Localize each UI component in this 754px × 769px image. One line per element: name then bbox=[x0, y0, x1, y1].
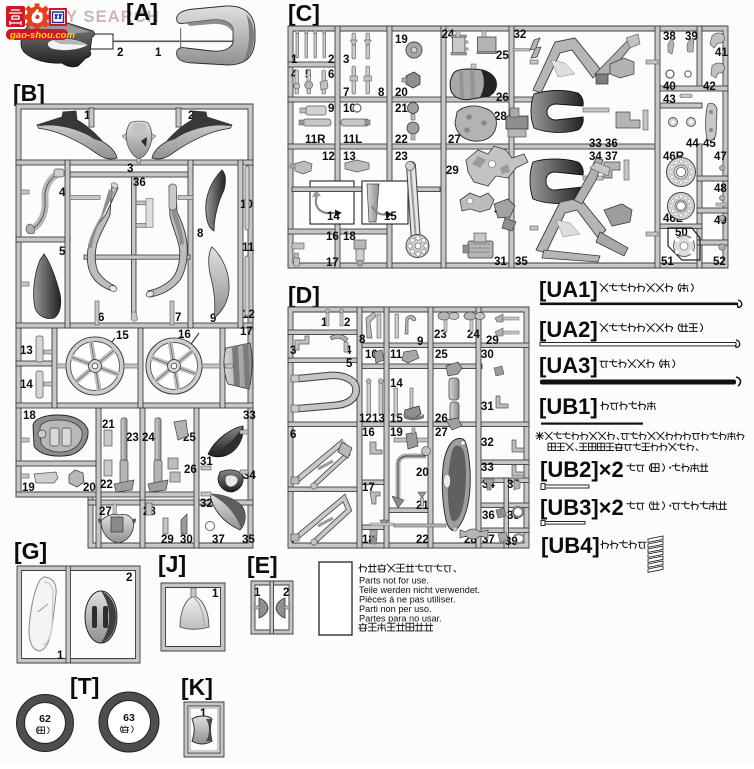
svg-text:30: 30 bbox=[180, 534, 193, 546]
svg-text:14: 14 bbox=[327, 211, 340, 223]
svg-text:[G]: [G] bbox=[14, 538, 47, 564]
svg-text:22: 22 bbox=[416, 534, 429, 546]
svg-text:9: 9 bbox=[328, 103, 334, 115]
svg-text:12: 12 bbox=[359, 413, 372, 425]
svg-text:[UB3]×2: [UB3]×2 bbox=[540, 495, 624, 520]
svg-text:15: 15 bbox=[384, 211, 397, 223]
svg-text:[K]: [K] bbox=[181, 674, 213, 700]
svg-text:19: 19 bbox=[22, 482, 35, 494]
svg-text:37: 37 bbox=[605, 151, 618, 163]
svg-text:32: 32 bbox=[514, 29, 527, 41]
svg-text:[J]: [J] bbox=[158, 551, 186, 577]
svg-text:[UA1]: [UA1] bbox=[539, 277, 598, 302]
svg-text:24: 24 bbox=[142, 432, 155, 444]
svg-text:22: 22 bbox=[395, 134, 408, 146]
svg-text:3: 3 bbox=[127, 163, 133, 175]
svg-text:21: 21 bbox=[395, 103, 408, 115]
svg-text:19: 19 bbox=[395, 34, 408, 46]
svg-text:29: 29 bbox=[486, 335, 499, 347]
svg-text:42: 42 bbox=[703, 81, 716, 93]
svg-text:9: 9 bbox=[417, 336, 423, 348]
svg-text:[B]: [B] bbox=[13, 80, 45, 106]
svg-text:33: 33 bbox=[589, 138, 602, 150]
svg-text:11L: 11L bbox=[343, 134, 362, 146]
svg-text:[UB2]×2: [UB2]×2 bbox=[540, 457, 624, 482]
svg-text:31: 31 bbox=[481, 401, 494, 413]
svg-text:25: 25 bbox=[496, 50, 509, 62]
svg-text:15: 15 bbox=[116, 330, 129, 342]
svg-text:1: 1 bbox=[212, 588, 219, 600]
svg-text:Teile werden nicht verwendet.: Teile werden nicht verwendet. bbox=[359, 585, 480, 595]
svg-text:[E]: [E] bbox=[247, 552, 278, 578]
svg-text:14: 14 bbox=[20, 379, 33, 391]
svg-text:7: 7 bbox=[175, 312, 181, 324]
svg-text:23: 23 bbox=[126, 432, 139, 444]
svg-text:3: 3 bbox=[343, 54, 349, 66]
svg-text:8: 8 bbox=[359, 334, 366, 346]
svg-text:2: 2 bbox=[328, 54, 334, 66]
svg-text:18: 18 bbox=[23, 410, 36, 422]
svg-text:4: 4 bbox=[59, 187, 66, 199]
svg-text:26: 26 bbox=[184, 464, 197, 476]
svg-text:20: 20 bbox=[395, 87, 408, 99]
svg-text:32: 32 bbox=[481, 437, 494, 449]
svg-text:[T]: [T] bbox=[70, 673, 99, 699]
svg-text:36: 36 bbox=[482, 510, 495, 522]
svg-text:33: 33 bbox=[243, 410, 256, 422]
svg-text:20: 20 bbox=[83, 482, 96, 494]
svg-text:31: 31 bbox=[494, 256, 507, 268]
svg-text:41: 41 bbox=[715, 47, 728, 59]
svg-text:22: 22 bbox=[100, 479, 113, 491]
svg-text:29: 29 bbox=[161, 534, 174, 546]
svg-text:Partes para no usar.: Partes para no usar. bbox=[359, 614, 442, 624]
svg-text:gao-shou.com: gao-shou.com bbox=[9, 30, 75, 41]
svg-text:5: 5 bbox=[59, 246, 66, 258]
svg-text:37: 37 bbox=[212, 534, 225, 546]
svg-text:17: 17 bbox=[326, 257, 339, 269]
svg-text:[UA3]: [UA3] bbox=[539, 353, 598, 378]
svg-text:Pièces á ne pas utiliser.: Pièces á ne pas utiliser. bbox=[359, 595, 456, 605]
svg-text:[UB1]: [UB1] bbox=[539, 394, 598, 419]
svg-text:[UB4]: [UB4] bbox=[541, 533, 600, 558]
svg-text:1: 1 bbox=[254, 587, 261, 599]
svg-text:48: 48 bbox=[714, 183, 727, 195]
svg-text:5: 5 bbox=[346, 358, 353, 370]
svg-text:29: 29 bbox=[446, 165, 459, 177]
svg-text:36: 36 bbox=[605, 138, 618, 150]
svg-text:35: 35 bbox=[242, 534, 255, 546]
svg-text:Parts not for use.: Parts not for use. bbox=[359, 576, 429, 586]
svg-text:2: 2 bbox=[126, 572, 132, 584]
svg-text:43: 43 bbox=[663, 94, 676, 106]
svg-text:40: 40 bbox=[663, 81, 676, 93]
svg-text:Parti non per uso.: Parti non per uso. bbox=[359, 604, 432, 614]
svg-text:21: 21 bbox=[102, 419, 115, 431]
svg-text:36: 36 bbox=[133, 177, 146, 189]
svg-text:20: 20 bbox=[416, 467, 429, 479]
svg-text:[UA2]: [UA2] bbox=[539, 317, 598, 342]
svg-text:1: 1 bbox=[57, 650, 64, 662]
svg-text:16: 16 bbox=[326, 231, 339, 243]
svg-text:2: 2 bbox=[283, 587, 289, 599]
svg-text:1: 1 bbox=[155, 47, 162, 59]
svg-text:8: 8 bbox=[378, 87, 385, 99]
svg-text:35: 35 bbox=[515, 256, 528, 268]
svg-text:7: 7 bbox=[343, 87, 349, 99]
svg-text:11R: 11R bbox=[305, 134, 326, 146]
svg-text:63: 63 bbox=[123, 712, 135, 724]
svg-text:2: 2 bbox=[117, 47, 123, 59]
svg-text:6: 6 bbox=[290, 429, 296, 441]
svg-text:11: 11 bbox=[390, 349, 403, 361]
svg-text:6: 6 bbox=[328, 69, 334, 81]
svg-text:[C]: [C] bbox=[288, 0, 320, 26]
svg-text:33: 33 bbox=[481, 462, 494, 474]
svg-text:2: 2 bbox=[344, 317, 350, 329]
svg-text:62: 62 bbox=[39, 713, 51, 725]
svg-text:44: 44 bbox=[686, 138, 699, 150]
svg-text:13: 13 bbox=[20, 345, 33, 357]
svg-text:52: 52 bbox=[713, 256, 726, 268]
svg-text:16: 16 bbox=[362, 427, 375, 439]
svg-text:8: 8 bbox=[197, 228, 204, 240]
svg-text:51: 51 bbox=[661, 256, 674, 268]
svg-text:24: 24 bbox=[467, 329, 480, 341]
svg-text:25: 25 bbox=[435, 349, 448, 361]
svg-text:27: 27 bbox=[448, 134, 461, 146]
svg-text:30: 30 bbox=[481, 349, 494, 361]
svg-text:12: 12 bbox=[322, 151, 335, 163]
svg-text:[D]: [D] bbox=[288, 282, 320, 308]
svg-text:17: 17 bbox=[240, 326, 253, 338]
svg-text:47: 47 bbox=[714, 151, 727, 163]
svg-text:[A]: [A] bbox=[126, 0, 158, 25]
svg-text:13: 13 bbox=[372, 413, 385, 425]
svg-text:23: 23 bbox=[395, 151, 408, 163]
svg-text:19: 19 bbox=[390, 427, 403, 439]
svg-text:11: 11 bbox=[242, 242, 255, 254]
svg-text:26: 26 bbox=[435, 413, 448, 425]
svg-text:27: 27 bbox=[435, 427, 448, 439]
svg-text:26: 26 bbox=[496, 92, 509, 104]
